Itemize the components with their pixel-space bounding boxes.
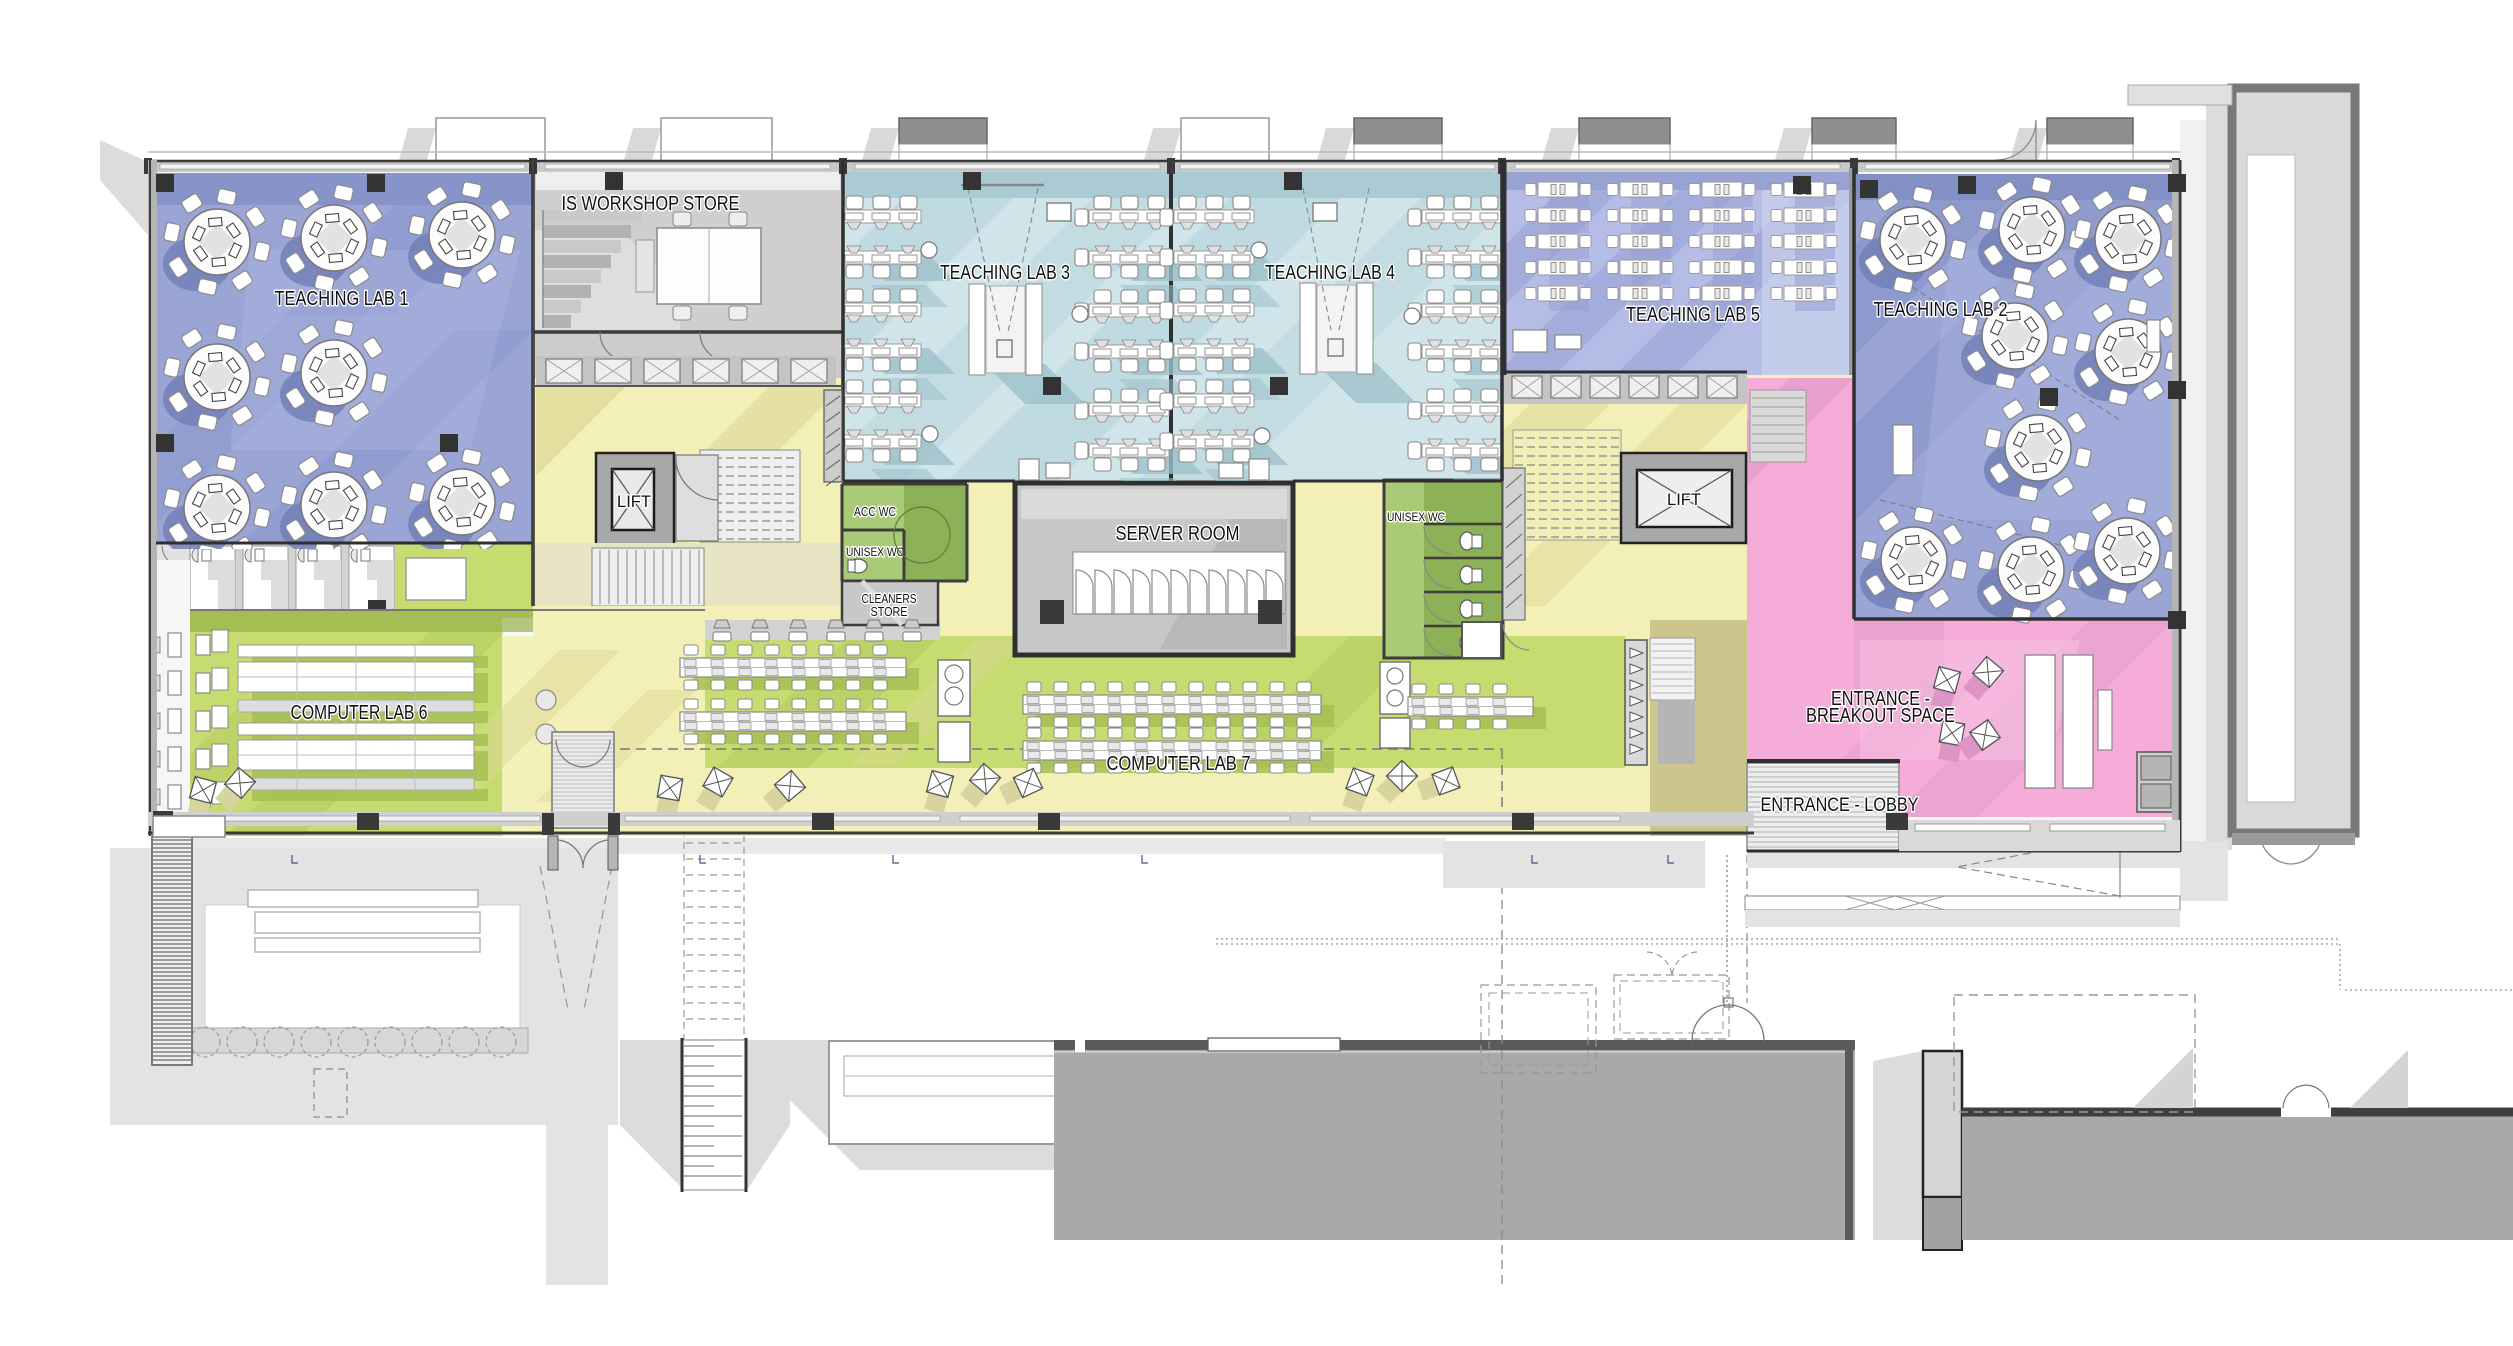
svg-text:SERVER ROOM: SERVER ROOM	[1116, 523, 1240, 545]
svg-text:BREAKOUT SPACE: BREAKOUT SPACE	[1806, 705, 1955, 727]
svg-text:COMPUTER LAB 6: COMPUTER LAB 6	[291, 702, 428, 724]
svg-text:IS WORKSHOP STORE: IS WORKSHOP STORE	[562, 193, 740, 215]
svg-text:LIFT: LIFT	[617, 492, 651, 511]
svg-text:TEACHING LAB 3: TEACHING LAB 3	[940, 262, 1070, 284]
svg-text:ENTRANCE - LOBBY: ENTRANCE - LOBBY	[1761, 795, 1919, 816]
svg-text:TEACHING LAB 1: TEACHING LAB 1	[275, 288, 409, 310]
svg-text:UNISEX WC: UNISEX WC	[846, 545, 904, 559]
svg-text:TEACHING LAB 2: TEACHING LAB 2	[1874, 299, 2008, 321]
svg-text:LIFT: LIFT	[1667, 490, 1701, 509]
svg-text:TEACHING LAB 5: TEACHING LAB 5	[1626, 304, 1760, 326]
svg-text:STORE: STORE	[871, 605, 908, 619]
svg-text:ACC WC: ACC WC	[854, 505, 896, 519]
svg-text:UNISEX WC: UNISEX WC	[1387, 510, 1445, 524]
svg-text:CLEANERS: CLEANERS	[862, 592, 917, 606]
svg-text:TEACHING LAB 4: TEACHING LAB 4	[1265, 262, 1395, 284]
svg-text:COMPUTER LAB 7: COMPUTER LAB 7	[1107, 753, 1251, 775]
